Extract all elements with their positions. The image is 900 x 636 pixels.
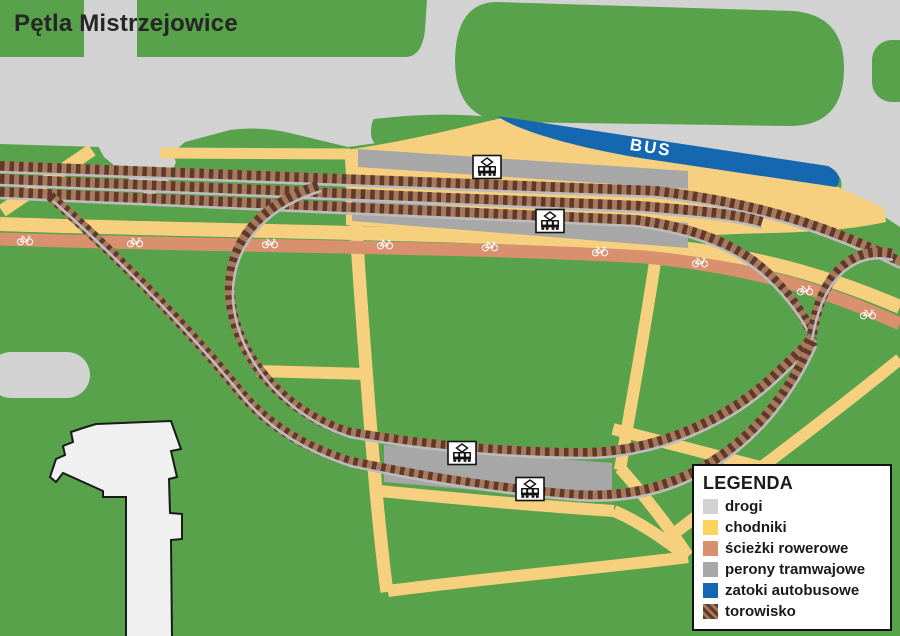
legend-swatch-chodniki	[703, 520, 718, 535]
grass-island-top-right	[872, 40, 900, 102]
legend-title: LEGENDA	[703, 473, 881, 494]
legend-swatch-perony-tramwajowe	[703, 562, 718, 577]
sidewalk-branch-left	[257, 371, 366, 374]
tram-stop-icon	[516, 478, 544, 501]
legend-item-torowisko: torowisko	[703, 603, 881, 620]
legend-item-sciezki-rowerowe: ścieżki rowerowe	[703, 540, 881, 557]
sidewalk-left-band	[160, 153, 350, 154]
legend-item-drogi: drogi	[703, 498, 881, 515]
legend-item-perony-tramwajowe: perony tramwajowe	[703, 561, 881, 578]
legend-swatch-sciezki-rowerowe	[703, 541, 718, 556]
legend-item-chodniki: chodniki	[703, 519, 881, 536]
sidewalk-bottom	[388, 557, 688, 591]
grass-island-top	[455, 2, 844, 126]
legend-item-zatoki-autobusowe: zatoki autobusowe	[703, 582, 881, 599]
legend: LEGENDA drogi chodniki ścieżki rowerowe …	[692, 464, 892, 631]
legend-swatch-torowisko	[703, 604, 718, 619]
tram-stop-icon	[536, 210, 564, 233]
road-stub-left	[0, 352, 90, 398]
map-title: Pętla Mistrzejowice	[14, 10, 238, 38]
legend-swatch-drogi	[703, 499, 718, 514]
tram-stop-icon	[448, 442, 476, 465]
building-outline	[50, 421, 182, 636]
tram-stop-icon	[473, 156, 501, 179]
legend-swatch-zatoki-autobusowe	[703, 583, 718, 598]
map-canvas: BUS	[0, 0, 900, 636]
